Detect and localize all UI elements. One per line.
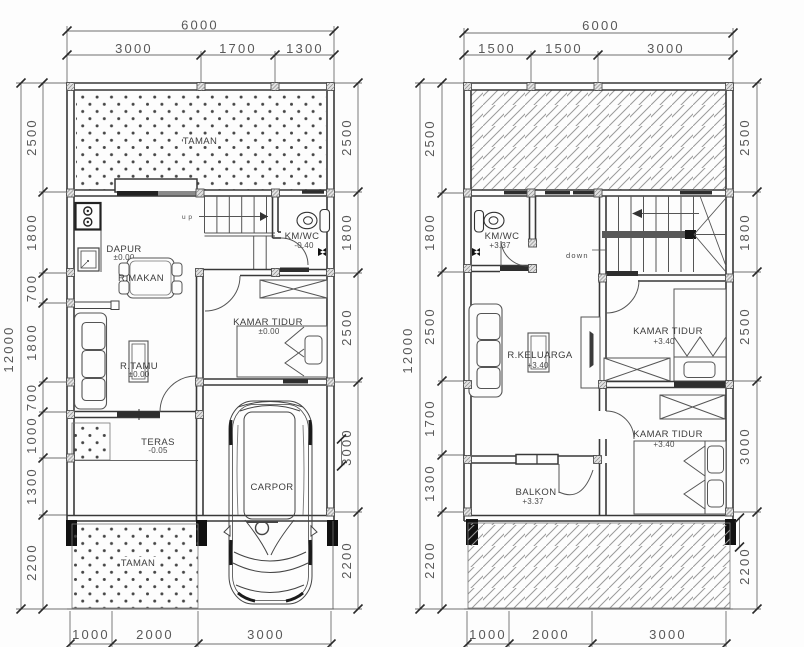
- svg-text:-0.05: -0.05: [148, 446, 168, 455]
- svg-text:1000: 1000: [72, 627, 110, 642]
- svg-text:1800: 1800: [339, 213, 354, 251]
- svg-text:2200: 2200: [737, 547, 752, 585]
- svg-text:3000: 3000: [115, 41, 153, 56]
- svg-text:down: down: [566, 251, 589, 260]
- svg-text:2500: 2500: [422, 119, 437, 157]
- svg-text:KAMAR TIDUR: KAMAR TIDUR: [633, 326, 703, 337]
- svg-text:6000: 6000: [181, 18, 219, 33]
- svg-text:2000: 2000: [532, 627, 570, 642]
- svg-text:700: 700: [24, 274, 39, 302]
- svg-text:6000: 6000: [582, 18, 620, 33]
- svg-text:3000: 3000: [737, 427, 752, 465]
- svg-text:3000: 3000: [247, 627, 285, 642]
- svg-text:2500: 2500: [339, 308, 354, 346]
- svg-text:+3.37: +3.37: [522, 497, 544, 506]
- svg-text:1300: 1300: [422, 464, 437, 502]
- svg-text:1700: 1700: [219, 41, 257, 56]
- svg-text:1800: 1800: [422, 213, 437, 251]
- svg-text:1800: 1800: [24, 213, 39, 251]
- svg-text:TAMAN: TAMAN: [121, 558, 156, 569]
- svg-text:2500: 2500: [737, 307, 752, 345]
- svg-text:-0.40: -0.40: [294, 241, 314, 250]
- svg-text:2500: 2500: [339, 118, 354, 156]
- svg-text:1500: 1500: [545, 41, 583, 56]
- svg-text:TAMAN: TAMAN: [183, 136, 218, 147]
- svg-text:1300: 1300: [24, 467, 39, 505]
- svg-text:2200: 2200: [24, 543, 39, 581]
- svg-text:3000: 3000: [647, 41, 685, 56]
- svg-text:2500: 2500: [422, 307, 437, 345]
- svg-text:1000: 1000: [469, 627, 507, 642]
- svg-text:700: 700: [24, 383, 39, 411]
- svg-text:+3.40: +3.40: [653, 337, 675, 346]
- svg-text:KAMAR TIDUR: KAMAR TIDUR: [633, 429, 703, 440]
- svg-text:+3.37: +3.37: [489, 241, 511, 250]
- svg-text:CARPOR: CARPOR: [250, 482, 293, 493]
- svg-text:12000: 12000: [1, 325, 16, 372]
- svg-text:1000: 1000: [24, 416, 39, 454]
- svg-text:+3.40: +3.40: [527, 361, 549, 370]
- svg-text:2500: 2500: [737, 118, 752, 156]
- svg-text:3000: 3000: [649, 627, 687, 642]
- svg-text:1500: 1500: [478, 41, 516, 56]
- svg-text:1800: 1800: [737, 213, 752, 251]
- svg-text:2200: 2200: [422, 541, 437, 579]
- svg-text:u p: u p: [182, 214, 193, 221]
- svg-text:±0.00: ±0.00: [259, 327, 280, 336]
- svg-text:2000: 2000: [136, 627, 174, 642]
- svg-text:R.KELUARGA: R.KELUARGA: [507, 350, 573, 361]
- svg-text:R.MAKAN: R.MAKAN: [118, 273, 164, 284]
- svg-text:2500: 2500: [24, 118, 39, 156]
- svg-text:1700: 1700: [422, 399, 437, 437]
- svg-text:1300: 1300: [286, 41, 324, 56]
- svg-text:±0.00: ±0.00: [129, 370, 150, 379]
- svg-text:+3.40: +3.40: [653, 440, 675, 449]
- svg-text:1800: 1800: [24, 323, 39, 361]
- svg-text:2200: 2200: [339, 541, 354, 579]
- svg-text:12000: 12000: [400, 326, 415, 373]
